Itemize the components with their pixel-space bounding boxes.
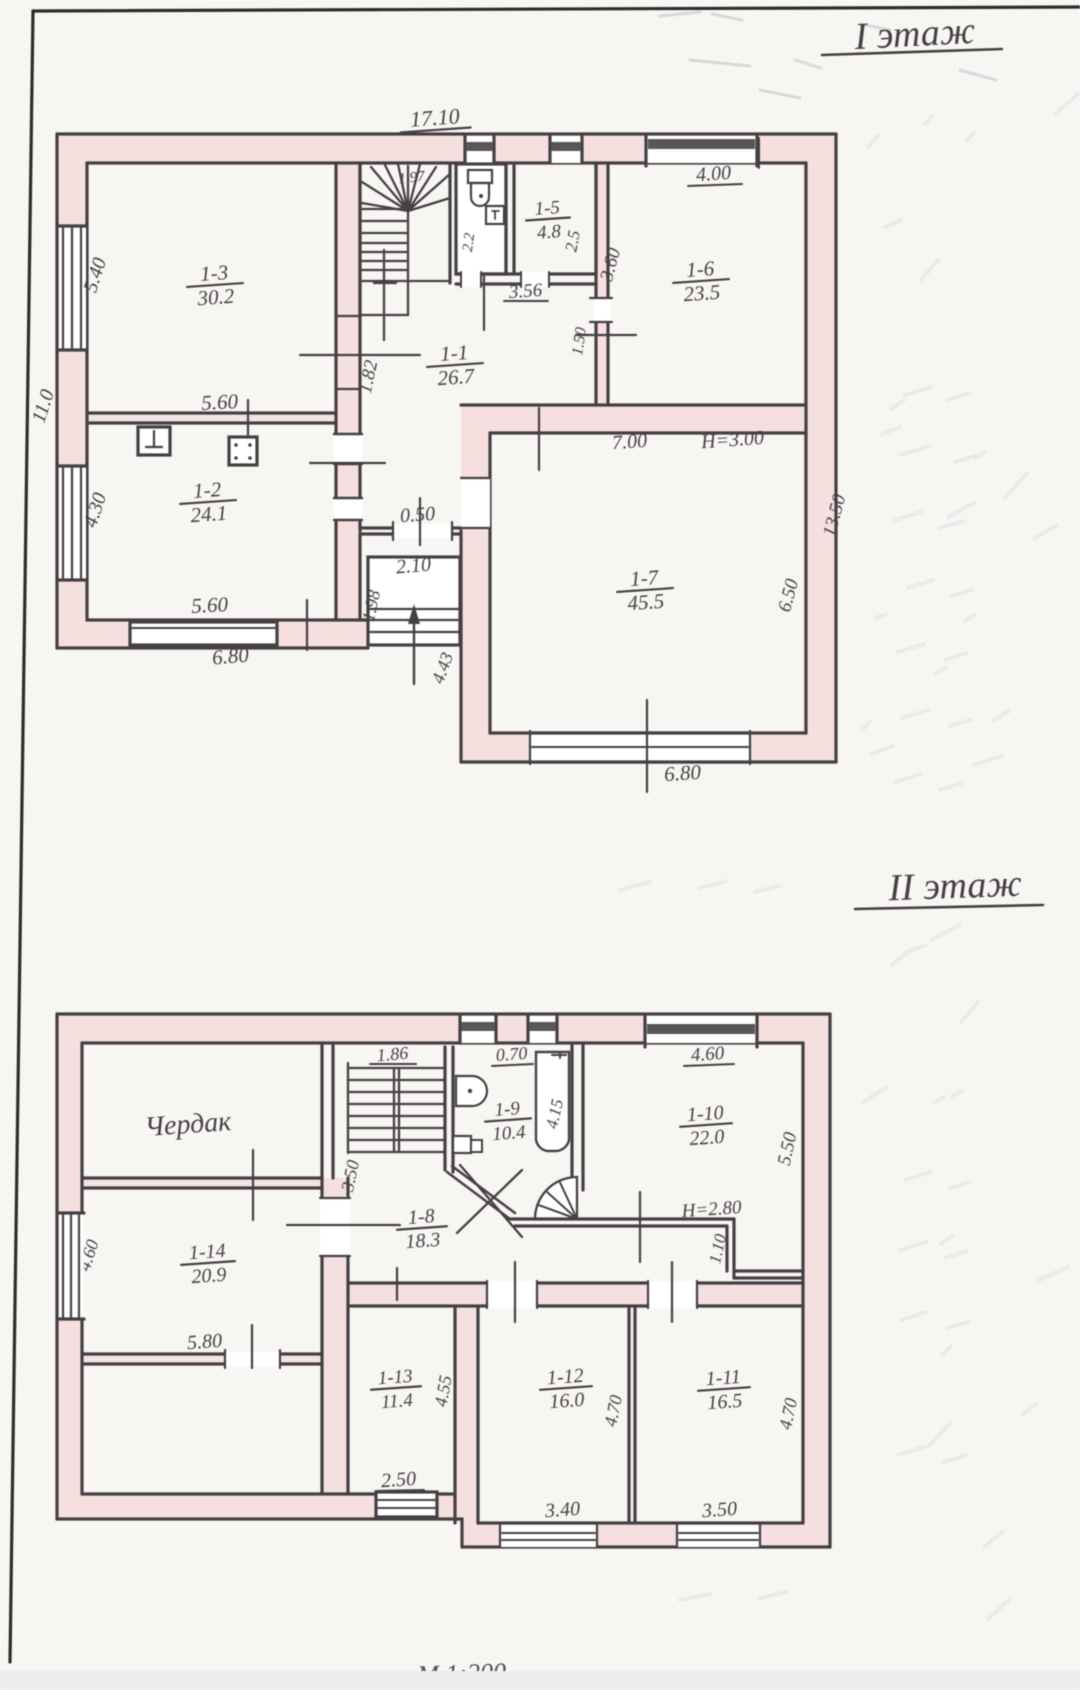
svg-text:H=3.00: H=3.00 <box>699 427 764 453</box>
svg-text:7.00: 7.00 <box>611 430 647 454</box>
svg-text:6.80: 6.80 <box>663 760 702 787</box>
svg-text:0.50: 0.50 <box>399 503 435 527</box>
svg-text:Чердак: Чердак <box>144 1106 233 1143</box>
svg-text:16.5: 16.5 <box>707 1390 743 1414</box>
svg-text:26.7: 26.7 <box>437 364 477 391</box>
svg-text:1.97: 1.97 <box>398 169 427 188</box>
svg-text:3.40: 3.40 <box>543 1498 580 1522</box>
svg-text:2.5: 2.5 <box>561 229 583 253</box>
svg-text:1-12: 1-12 <box>546 1365 584 1390</box>
svg-text:1-2: 1-2 <box>192 477 222 503</box>
svg-text:1-13: 1-13 <box>377 1366 413 1389</box>
svg-text:4.8: 4.8 <box>536 221 562 244</box>
svg-text:10.4: 10.4 <box>492 1122 527 1145</box>
svg-text:6.80: 6.80 <box>211 642 250 669</box>
svg-text:5.80: 5.80 <box>186 1330 222 1354</box>
svg-text:1-3: 1-3 <box>199 260 229 286</box>
svg-text:45.5: 45.5 <box>627 589 665 616</box>
svg-text:5.60: 5.60 <box>191 592 229 618</box>
svg-text:1-6: 1-6 <box>685 256 715 282</box>
svg-text:20.9: 20.9 <box>191 1264 227 1288</box>
svg-text:1-11: 1-11 <box>705 1366 742 1390</box>
svg-text:2.10: 2.10 <box>395 554 432 579</box>
svg-text:18.3: 18.3 <box>405 1229 441 1253</box>
svg-text:3.56: 3.56 <box>507 280 543 303</box>
svg-text:4.00: 4.00 <box>695 162 731 186</box>
svg-text:2.2: 2.2 <box>460 232 479 253</box>
svg-text:II этаж: II этаж <box>887 863 1023 910</box>
svg-text:1-9: 1-9 <box>494 1098 521 1121</box>
svg-text:1-7: 1-7 <box>629 565 660 591</box>
svg-text:23.5: 23.5 <box>683 280 721 307</box>
svg-text:22.0: 22.0 <box>689 1126 725 1150</box>
svg-text:4.60: 4.60 <box>690 1043 725 1066</box>
svg-text:1-5: 1-5 <box>534 197 561 220</box>
svg-text:17.10: 17.10 <box>409 103 460 131</box>
svg-text:30.2: 30.2 <box>196 284 236 311</box>
svg-text:1-8: 1-8 <box>407 1205 435 1229</box>
svg-text:16.0: 16.0 <box>549 1389 585 1413</box>
svg-text:2.50: 2.50 <box>380 1468 416 1492</box>
svg-text:1-14: 1-14 <box>188 1240 226 1265</box>
svg-text:0.70: 0.70 <box>495 1043 528 1065</box>
svg-text:3.50: 3.50 <box>700 1498 737 1522</box>
svg-text:5.60: 5.60 <box>201 389 239 415</box>
svg-text:24.1: 24.1 <box>190 501 228 528</box>
svg-text:1-10: 1-10 <box>686 1102 724 1127</box>
svg-text:1.86: 1.86 <box>376 1043 409 1066</box>
svg-text:1-1: 1-1 <box>439 340 469 366</box>
svg-text:11.4: 11.4 <box>380 1390 414 1413</box>
